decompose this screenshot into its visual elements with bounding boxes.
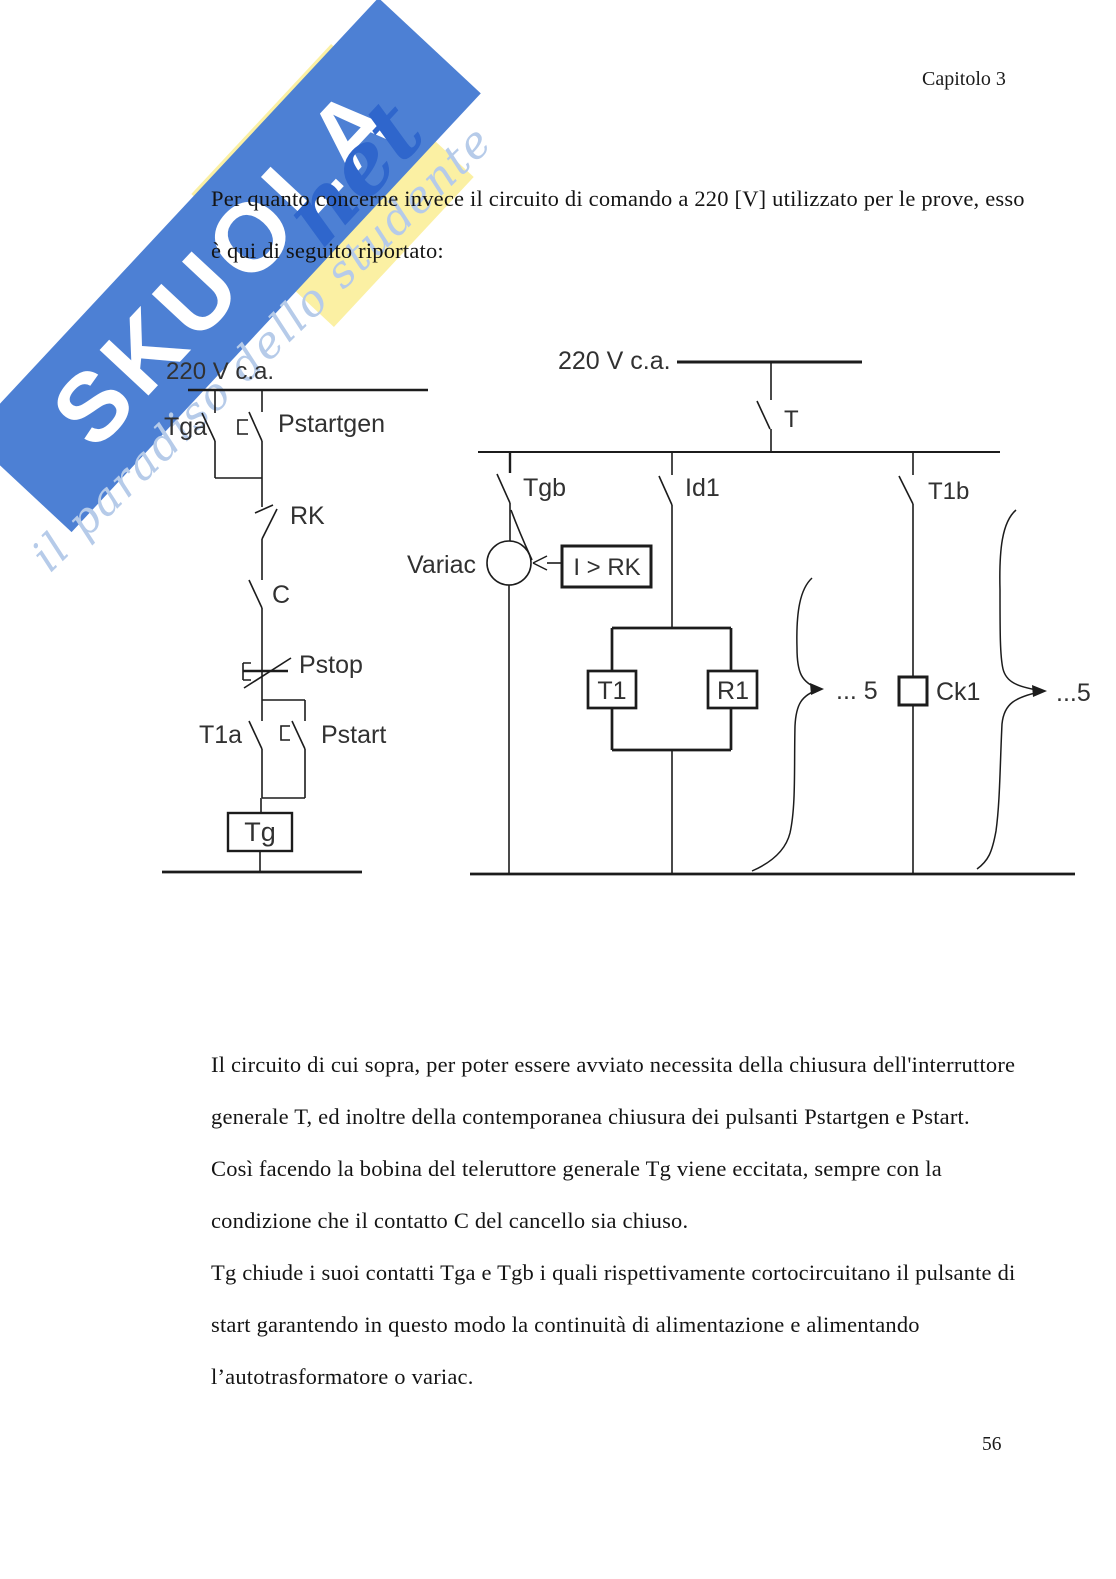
label-t1a: T1a — [199, 721, 242, 749]
label-c: C — [272, 581, 290, 609]
label-r1: R1 — [717, 677, 749, 705]
page-content: Capitolo 3 Per quanto concerne invece il… — [0, 0, 1116, 1579]
arrow-left-icon — [533, 556, 547, 570]
label-tgb: Tgb — [523, 474, 566, 502]
label-t1b: T1b — [928, 478, 969, 505]
t1a-contact — [249, 700, 262, 798]
brace-left — [752, 578, 824, 871]
tgb-contact — [497, 452, 510, 541]
label-id1: Id1 — [685, 474, 720, 502]
pstart-button — [281, 700, 305, 798]
control-circuit-diagram: 220 V c.a. Tga Pstartgen RK C Pstop T1a … — [0, 0, 1116, 1579]
label-tga: Tga — [164, 413, 207, 441]
label-pstart: Pstart — [321, 721, 386, 749]
label-t1: T1 — [597, 677, 626, 705]
t1b-contact — [899, 452, 913, 677]
label-supply-right: 220 V c.a. — [558, 347, 671, 375]
label-variac: Variac — [407, 551, 476, 579]
label-rk: RK — [290, 502, 325, 530]
label-supply-left: 220 V c.a. — [166, 358, 274, 385]
label-pstop: Pstop — [299, 651, 363, 679]
rk-contact — [255, 478, 277, 580]
label-pstartgen: Pstartgen — [278, 410, 385, 438]
ck1-box — [899, 677, 927, 705]
document-page: SKUOLA net il paradiso dello studente Ca… — [0, 0, 1116, 1579]
left-circuit — [162, 390, 428, 872]
label-tg-coil: Tg — [244, 817, 276, 847]
pstop-button — [243, 637, 291, 700]
c-contact — [249, 580, 262, 637]
variac-circle — [487, 541, 531, 585]
diagram-labels: 220 V c.a. Tga Pstartgen RK C Pstop T1a … — [164, 347, 1091, 847]
variac-symbol — [487, 510, 532, 874]
label-ellipsis5-left: ... 5 — [836, 677, 878, 705]
right-circuit — [470, 362, 1075, 874]
id1-contact — [659, 452, 672, 628]
t-switch — [757, 362, 771, 452]
label-ellipsis5-right: ...5 — [1056, 679, 1091, 707]
label-t: T — [784, 406, 799, 433]
label-overcurrent: I > RK — [573, 554, 640, 581]
variac-wiper-curve — [511, 510, 532, 560]
pstartgen-button — [238, 390, 262, 478]
label-ck1: Ck1 — [936, 678, 980, 706]
brace-right — [977, 510, 1047, 869]
